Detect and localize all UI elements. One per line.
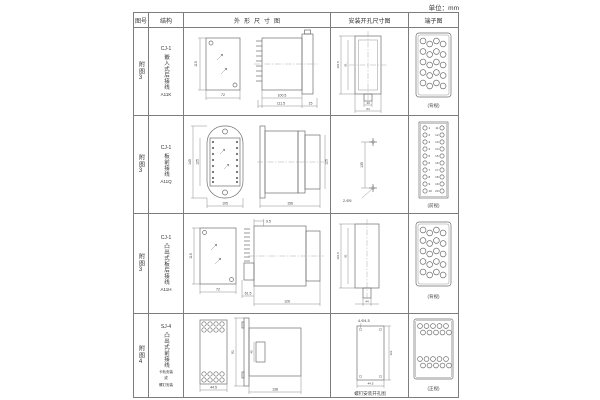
dim-cutout-width: 44 <box>365 300 369 304</box>
dim-body-depth: 126 <box>284 300 290 304</box>
dim-total-depth: 111.5 <box>277 102 285 106</box>
side-view: 156 125 <box>257 126 329 208</box>
header-terminal: 端子图 <box>409 13 458 28</box>
pin-number: 16 <box>435 161 439 165</box>
row3-terminal-diagram: (背视) <box>409 214 458 314</box>
dim-side-height: 125 <box>325 159 329 165</box>
dim-front-height: 115 <box>194 61 198 67</box>
row4-outline-drawing: 44.5 91 45 138 <box>184 314 331 397</box>
row3-fig-no: 附图3 <box>134 214 149 314</box>
pin-number: 8 <box>429 175 431 179</box>
unit-label: 单位：mm <box>133 2 459 12</box>
row1-fig-no: 附图3 <box>134 28 149 116</box>
row1-structure: CJ-1 嵌入式后接线 A11K <box>149 28 184 116</box>
row1-terminal-cell: (背视) <box>409 28 458 116</box>
front-view: 115 72 <box>194 38 240 100</box>
pin-number: 7 <box>429 168 431 172</box>
spec-table: 图号 结构 外形尺寸图 安装开孔尺寸图 端子图 附图3 CJ-1 嵌入式后接线 … <box>133 12 459 398</box>
row2-mounting-cell: 135 2-Φ5 <box>331 116 409 214</box>
dim-cutout-height: 101.5 <box>336 61 340 69</box>
row1-mounting-cell: 101.5 91 14 64 <box>331 28 409 116</box>
front-view: 145 125 105 <box>188 126 243 208</box>
structure-name: 凸出式前接线 <box>162 332 170 368</box>
row4-mounting-drawing: 4-Φ4.5 121 44.5 螺钉安装开孔图 <box>331 314 409 397</box>
dim-side-height: 91 <box>231 350 235 354</box>
structure-name: 板前接线 <box>162 153 170 177</box>
row4-outline-cell: 44.5 91 45 138 <box>184 314 331 397</box>
pin-number: 3 <box>429 140 431 144</box>
structure-code: A11Q <box>160 179 171 184</box>
terminal-numbers: 1 2 3 4 5 6 7 8 9 10 11 12 13 14 15 16 1… <box>429 126 439 193</box>
row4-fig-no: 附图4 <box>134 314 149 397</box>
dim-hole-width: 44.5 <box>368 382 374 386</box>
dim-hole-spacing: 135 <box>360 162 364 168</box>
fig-no-label: 附图3 <box>137 154 146 175</box>
dim-flange-depth: 15 <box>309 102 313 106</box>
mounting-note-2: 或 <box>164 376 168 381</box>
dim-hole-height: 121 <box>389 350 393 355</box>
row3-mounting-drawing: 101.5 91 44 <box>331 214 409 314</box>
row1-terminal-diagram: (背视) <box>409 28 458 116</box>
dim-slot-width: 14 <box>366 101 370 105</box>
dim-body-height: 125 <box>196 159 200 165</box>
row1-outline-cell: 115 72 1 <box>184 28 331 116</box>
mounting-note-3: 螺钉安装 <box>159 383 173 388</box>
pin-number: 2 <box>429 133 431 137</box>
dim-body-depth: 100.5 <box>278 94 287 98</box>
dim-inner-height: 91 <box>344 254 348 258</box>
holes-label: 2-Φ5 <box>343 199 352 203</box>
pin-number: 1 <box>429 126 431 130</box>
mounting-caption: 螺钉安装开孔图 <box>354 390 386 397</box>
row3-outline-cell: 115 72 9.5 <box>184 214 331 314</box>
row2-fig-no: 附图3 <box>134 116 149 214</box>
front-view: 115 72 <box>189 228 236 294</box>
pin-number: 12 <box>435 133 439 137</box>
manual-page: { "unit_label": "单位：mm", "table": { "hea… <box>0 0 600 400</box>
fig-no-label: 附图4 <box>137 345 146 366</box>
front-view: 44.5 <box>200 320 227 392</box>
structure-name: 嵌入式后接线 <box>162 54 170 90</box>
side-view: 100.5 111.5 15 <box>254 30 318 108</box>
dim-bracket-height: 45 <box>250 350 254 354</box>
terminal-pins <box>423 126 444 193</box>
terminal-view-caption: (前视) <box>428 202 440 209</box>
row2-structure: CJ-1 板前接线 A11Q <box>149 116 184 214</box>
row2-mounting-drawing: 135 2-Φ5 <box>331 116 409 214</box>
holes-label: 4-Φ4.5 <box>358 319 370 323</box>
dim-front-width: 72 <box>216 288 220 292</box>
dim-cutout-height: 101.5 <box>336 252 340 260</box>
row3-mounting-cell: 101.5 91 44 <box>331 214 409 314</box>
side-view: 9.5 61.5 126 <box>242 219 324 306</box>
row4-structure: SJ-4 凸出式前接线 卡轨安装 或 螺钉安装 <box>149 314 184 397</box>
row2-terminal-cell: 1 2 3 4 5 6 7 8 9 10 11 12 13 14 15 16 1… <box>409 116 458 214</box>
row1-outline-drawing: 115 72 1 <box>184 28 331 116</box>
row2-outline-drawing: 145 125 105 <box>184 116 331 214</box>
fig-no-label: 附图3 <box>137 253 146 274</box>
pin-number: 18 <box>435 175 439 179</box>
pin-number: 6 <box>429 161 431 165</box>
header-structure: 结构 <box>149 13 184 28</box>
fig-no-label: 附图3 <box>137 61 146 82</box>
pin-number: 13 <box>435 140 439 144</box>
dim-inner-height: 91 <box>344 63 348 67</box>
header-outline: 外形尺寸图 <box>184 13 331 28</box>
model-label: CJ-1 <box>161 46 172 52</box>
structure-name: 凸出式板后接线 <box>162 243 170 285</box>
dim-depth: 156 <box>287 202 293 206</box>
terminal-view-caption: (背视) <box>428 102 440 109</box>
dim-depth: 138 <box>272 388 278 392</box>
header-fig-no: 图号 <box>134 13 149 28</box>
terminal-pins <box>420 227 446 278</box>
side-view: 91 45 138 <box>231 318 301 394</box>
pin-number: 10 <box>429 189 433 193</box>
structure-code: A11H <box>161 287 172 292</box>
pin-number: 4 <box>429 147 431 151</box>
structure-code: A11K <box>161 92 172 97</box>
dim-front-width: 72 <box>221 93 225 97</box>
pin-number: 9 <box>429 182 431 186</box>
row2-terminal-diagram: 1 2 3 4 5 6 7 8 9 10 11 12 13 14 15 16 1… <box>409 116 458 214</box>
dim-front-height: 115 <box>189 253 193 259</box>
pin-number: 19 <box>435 182 439 186</box>
row1-mounting-drawing: 101.5 91 14 64 <box>331 28 409 116</box>
model-label: CJ-1 <box>161 235 172 241</box>
row2-outline-cell: 145 125 105 <box>184 116 331 214</box>
row3-structure: CJ-1 凸出式板后接线 A11H <box>149 214 184 314</box>
terminal-view-caption: (正视) <box>428 385 440 392</box>
dim-flange-height: 145 <box>188 159 192 165</box>
terminal-pins <box>418 324 452 368</box>
dim-front-width: 44.5 <box>210 386 217 390</box>
row4-terminal-diagram: (正视) <box>409 314 458 397</box>
mounting-note-1: 卡轨安装 <box>159 370 173 375</box>
pin-number: 15 <box>435 154 439 158</box>
row4-terminal-cell: (正视) <box>409 314 458 397</box>
pin-number: 20 <box>435 189 439 193</box>
model-label: SJ-4 <box>161 324 171 330</box>
pin-number: 11 <box>435 126 438 130</box>
terminal-pins <box>420 38 446 89</box>
pin-number: 14 <box>435 147 439 151</box>
pin-number: 17 <box>435 168 439 172</box>
dim-tip-depth: 9.5 <box>266 220 271 224</box>
model-label: CJ-1 <box>161 145 172 151</box>
row3-outline-drawing: 115 72 9.5 <box>184 214 331 314</box>
dim-flange-width: 105 <box>222 202 228 206</box>
terminal-view-caption: (背视) <box>428 293 440 300</box>
row3-terminal-cell: (背视) <box>409 214 458 314</box>
dim-cutout-width: 64 <box>366 107 370 111</box>
header-mounting: 安装开孔尺寸图 <box>331 13 409 28</box>
row4-mounting-cell: 4-Φ4.5 121 44.5 螺钉安装开孔图 <box>331 314 409 397</box>
pin-number: 5 <box>429 154 431 158</box>
dim-rear-depth: 61.5 <box>245 292 252 296</box>
